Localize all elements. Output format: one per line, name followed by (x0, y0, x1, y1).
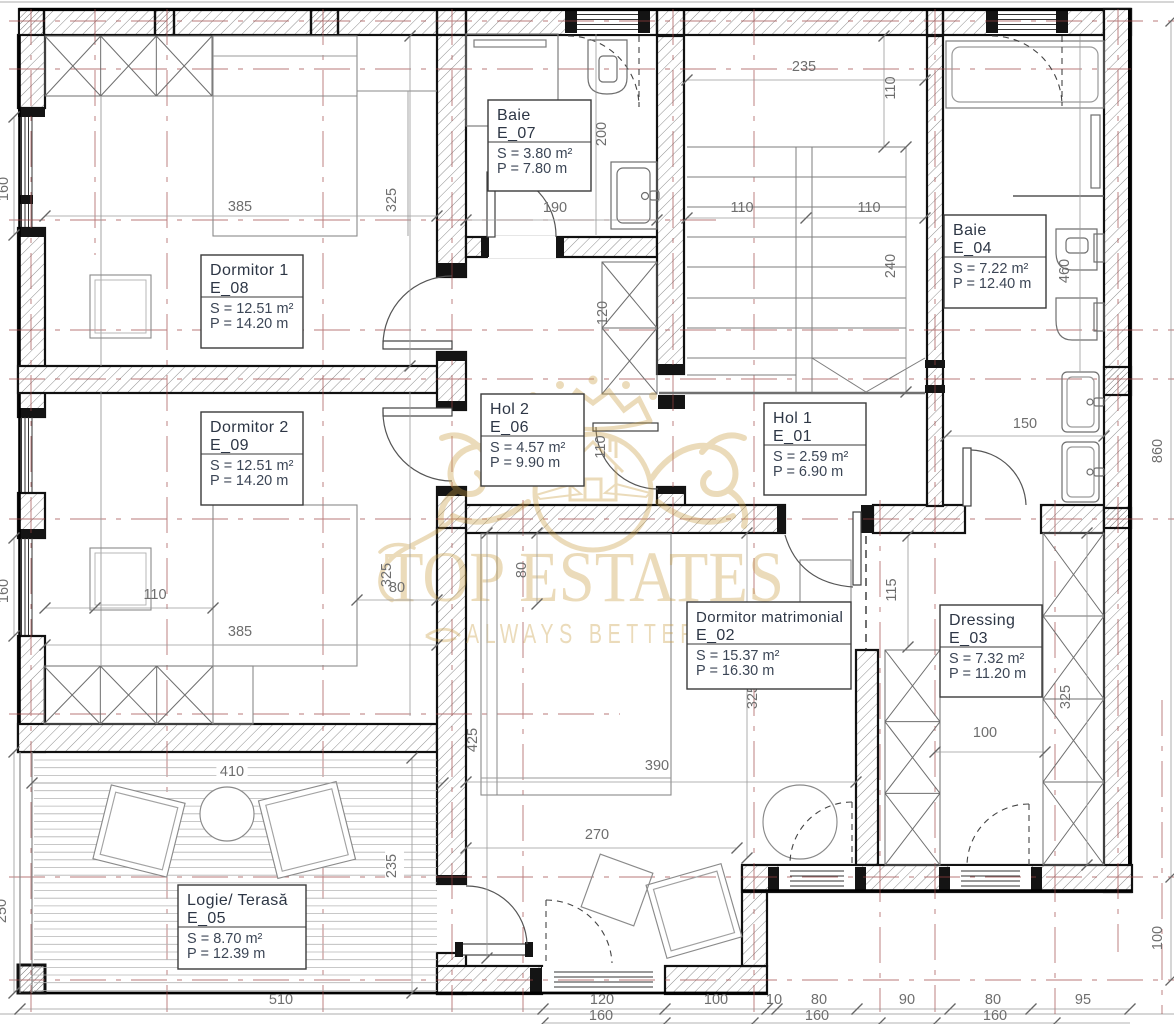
svg-text:P = 14.20 m: P = 14.20 m (210, 473, 288, 489)
svg-text:E_03: E_03 (949, 630, 988, 647)
svg-text:80: 80 (985, 992, 1001, 1008)
svg-text:190: 190 (543, 200, 567, 216)
svg-text:S = 12.51 m²: S = 12.51 m² (210, 458, 294, 474)
svg-text:240: 240 (883, 254, 899, 278)
svg-text:270: 270 (585, 827, 609, 843)
svg-text:E_04: E_04 (953, 240, 992, 257)
svg-text:385: 385 (228, 624, 252, 640)
svg-text:E_09: E_09 (210, 437, 249, 454)
svg-text:P = 14.20 m: P = 14.20 m (210, 316, 288, 332)
svg-text:80: 80 (811, 992, 827, 1008)
svg-text:P = 12.40 m: P = 12.40 m (953, 276, 1031, 292)
svg-text:P = 6.90 m: P = 6.90 m (773, 464, 843, 480)
svg-text:110: 110 (883, 76, 899, 99)
svg-text:325: 325 (379, 563, 395, 587)
svg-text:425: 425 (465, 728, 481, 752)
svg-text:Dormitor 2: Dormitor 2 (210, 419, 289, 436)
svg-text:S = 8.70 m²: S = 8.70 m² (187, 931, 263, 947)
svg-text:250: 250 (0, 899, 10, 923)
svg-text:P = 16.30 m: P = 16.30 m (696, 663, 774, 679)
svg-text:Hol 1: Hol 1 (773, 410, 812, 427)
svg-text:S = 3.80 m²: S = 3.80 m² (497, 146, 573, 162)
svg-text:235: 235 (792, 59, 816, 75)
svg-text:E_06: E_06 (490, 419, 529, 436)
svg-text:150: 150 (1013, 416, 1037, 432)
svg-text:S = 2.59 m²: S = 2.59 m² (773, 449, 849, 465)
svg-text:Dressing: Dressing (949, 612, 1015, 629)
svg-text:E_02: E_02 (696, 627, 735, 644)
svg-text:110: 110 (730, 200, 753, 216)
svg-text:Logie/ Terasă: Logie/ Terasă (187, 892, 288, 909)
svg-text:110: 110 (857, 200, 880, 216)
svg-text:100: 100 (973, 725, 997, 741)
svg-text:100: 100 (1150, 926, 1166, 950)
svg-text:120: 120 (590, 992, 614, 1008)
svg-text:460: 460 (1057, 259, 1073, 283)
svg-text:510: 510 (269, 992, 293, 1008)
svg-text:S = 7.32 m²: S = 7.32 m² (949, 651, 1025, 667)
svg-text:325: 325 (1058, 685, 1074, 709)
svg-text:E_01: E_01 (773, 428, 812, 445)
svg-text:S = 4.57 m²: S = 4.57 m² (490, 440, 566, 456)
svg-text:110: 110 (143, 587, 166, 603)
svg-text:ALWAYS BETTER: ALWAYS BETTER (466, 618, 700, 649)
svg-text:Baie: Baie (497, 107, 531, 124)
svg-text:S = 12.51 m²: S = 12.51 m² (210, 301, 294, 317)
svg-text:110: 110 (593, 435, 609, 458)
svg-text:390: 390 (645, 758, 669, 774)
svg-text:160: 160 (0, 579, 12, 603)
svg-text:160: 160 (805, 1008, 829, 1024)
svg-text:P = 7.80 m: P = 7.80 m (497, 161, 567, 177)
svg-text:325: 325 (384, 188, 400, 212)
svg-text:860: 860 (1150, 439, 1166, 463)
svg-text:Dormitor matrimonial: Dormitor matrimonial (696, 609, 843, 626)
svg-text:P = 11.20 m: P = 11.20 m (949, 666, 1026, 682)
svg-text:E_05: E_05 (187, 910, 226, 927)
svg-text:10: 10 (766, 992, 782, 1008)
svg-text:P = 12.39 m: P = 12.39 m (187, 946, 265, 962)
svg-text:235: 235 (384, 854, 400, 878)
svg-text:95: 95 (1075, 992, 1091, 1008)
svg-text:410: 410 (220, 764, 244, 780)
svg-text:S = 15.37 m²: S = 15.37 m² (696, 648, 780, 664)
svg-text:120: 120 (595, 301, 611, 325)
svg-text:Dormitor 1: Dormitor 1 (210, 262, 289, 279)
svg-text:S = 7.22 m²: S = 7.22 m² (953, 261, 1029, 277)
svg-text:E_08: E_08 (210, 280, 249, 297)
svg-text:E_07: E_07 (497, 125, 536, 142)
svg-text:100: 100 (704, 992, 728, 1008)
svg-text:385: 385 (228, 199, 252, 215)
svg-text:Hol 2: Hol 2 (490, 401, 529, 418)
svg-text:P = 9.90 m: P = 9.90 m (490, 455, 560, 471)
svg-text:80: 80 (514, 562, 530, 578)
svg-text:115: 115 (884, 578, 900, 601)
svg-text:200: 200 (594, 122, 610, 146)
svg-text:160: 160 (589, 1008, 613, 1024)
svg-text:90: 90 (899, 992, 915, 1008)
svg-text:Baie: Baie (953, 222, 987, 239)
svg-text:160: 160 (0, 177, 12, 201)
svg-text:160: 160 (983, 1008, 1007, 1024)
